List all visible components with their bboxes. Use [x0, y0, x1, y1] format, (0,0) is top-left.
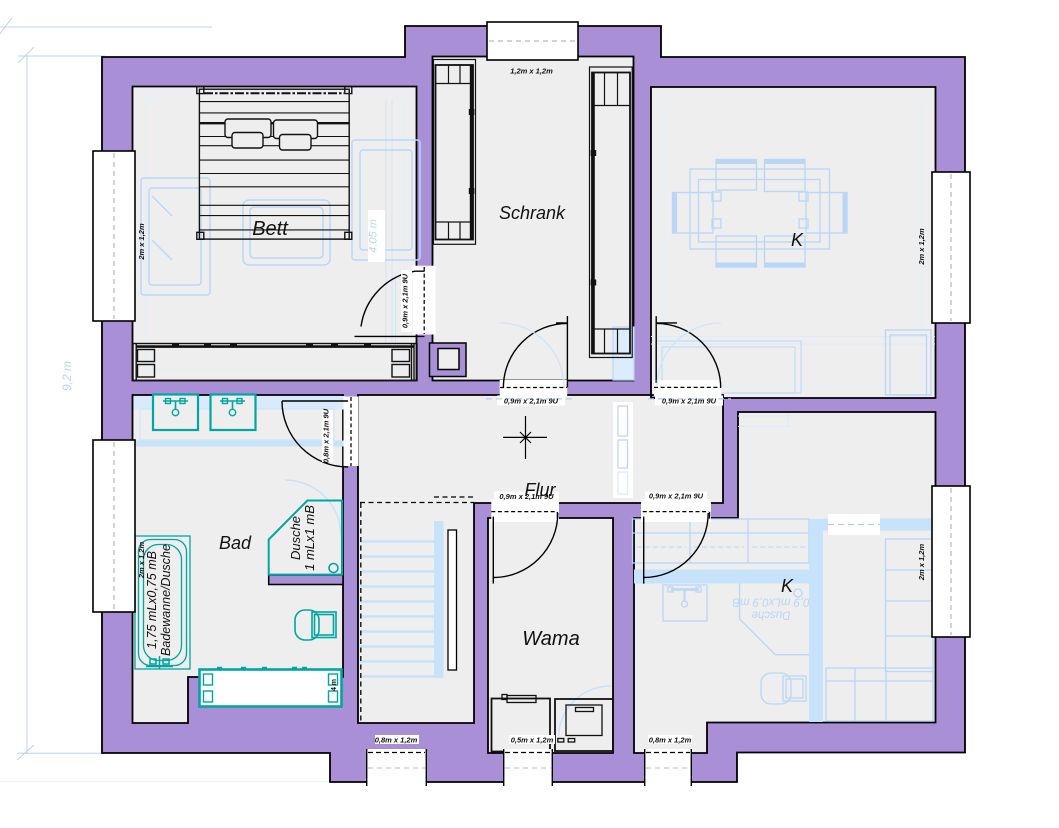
svg-text:K: K — [781, 576, 794, 596]
svg-text:Schrank: Schrank — [499, 203, 566, 223]
svg-text:2m x 1,2m: 2m x 1,2m — [137, 223, 146, 261]
svg-text:0,9 mLx0,9 mB: 0,9 mLx0,9 mB — [732, 596, 810, 608]
svg-text:1 mLx1 mB: 1 mLx1 mB — [302, 505, 317, 571]
svg-text:0,9m x 2,1m 9U: 0,9m x 2,1m 9U — [662, 397, 717, 406]
svg-text:Badewanne/Dusche: Badewanne/Dusche — [159, 544, 173, 656]
svg-text:9,2 m: 9,2 m — [60, 361, 74, 391]
svg-text:0,8m x 1,2m: 0,8m x 1,2m — [649, 736, 692, 745]
svg-text:0,8m x 1,2m: 0,8m x 1,2m — [375, 736, 418, 745]
svg-text:0,9m x 2,1m 9U: 0,9m x 2,1m 9U — [649, 492, 704, 501]
svg-text:2m x 1,2m: 2m x 1,2m — [917, 228, 926, 266]
svg-text:Dusche: Dusche — [288, 516, 303, 560]
svg-text:Wama: Wama — [522, 628, 579, 650]
svg-text:0,9m x 2,1m 9U: 0,9m x 2,1m 9U — [504, 397, 559, 406]
svg-text:0,5m x 1,2m: 0,5m x 1,2m — [511, 736, 554, 745]
svg-text:1,2m x 1,2m: 1,2m x 1,2m — [510, 67, 553, 76]
svg-text:0,9m x 2,1m 9U: 0,9m x 2,1m 9U — [499, 492, 554, 501]
svg-text:K: K — [791, 230, 804, 250]
svg-text:Dusche: Dusche — [752, 609, 791, 621]
svg-text:4 m: 4 m — [331, 679, 338, 691]
svg-text:Bett: Bett — [252, 218, 289, 240]
svg-text:2m x 1,2m: 2m x 1,2m — [137, 542, 146, 580]
svg-text:Bad: Bad — [219, 533, 252, 553]
svg-text:1,75 mLx0,75 mB: 1,75 mLx0,75 mB — [145, 551, 159, 649]
svg-text:4.05 m: 4.05 m — [368, 219, 380, 253]
svg-text:0,8m x 2,1m 9U: 0,8m x 2,1m 9U — [322, 408, 331, 463]
svg-text:0,9m x 2,1m 9U: 0,9m x 2,1m 9U — [401, 273, 410, 328]
svg-text:2m x 1,2m: 2m x 1,2m — [917, 544, 926, 582]
